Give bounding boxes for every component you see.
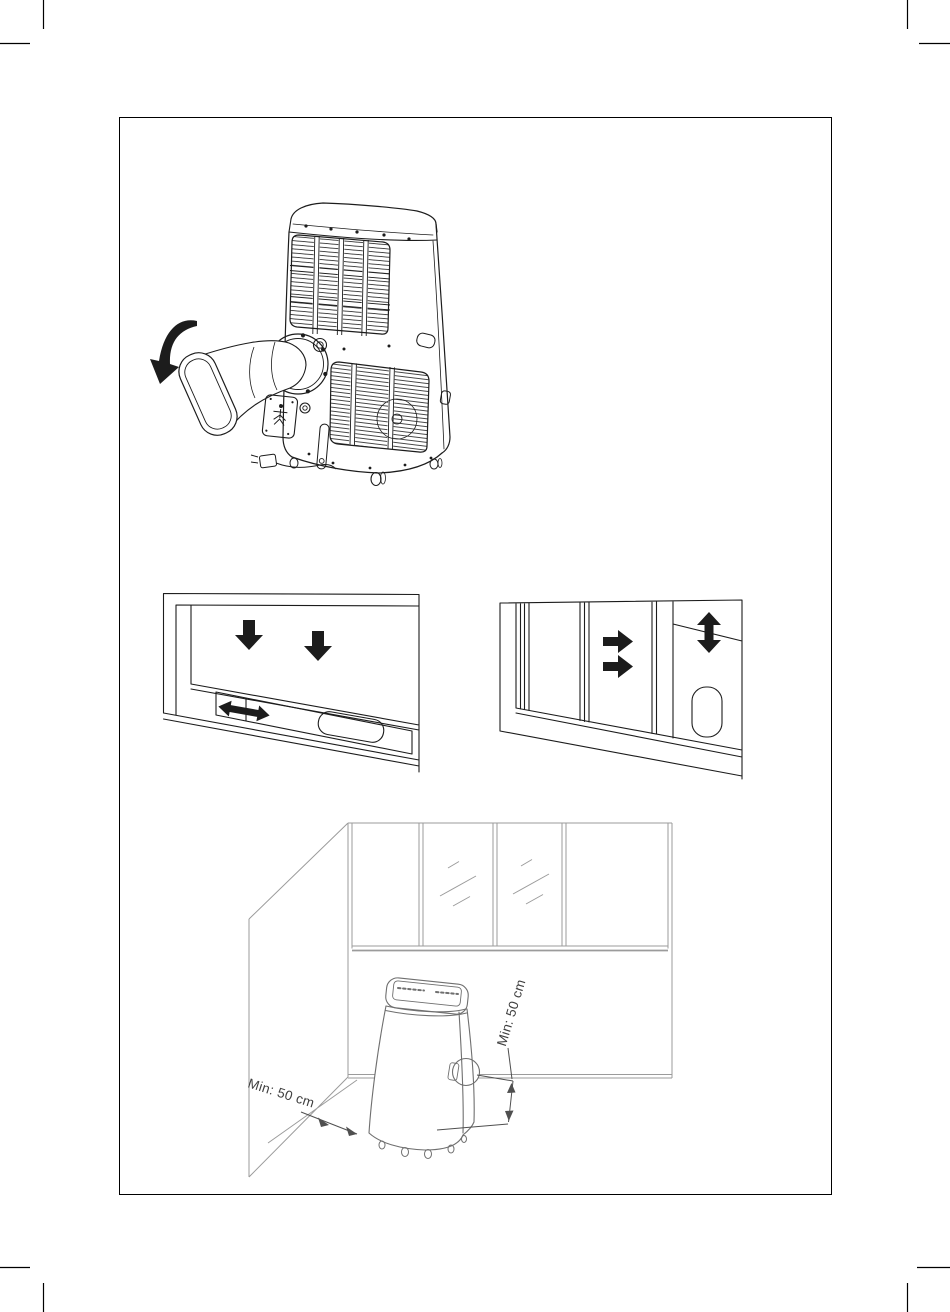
right-arrow-icon <box>603 630 633 653</box>
window-frame <box>164 594 420 773</box>
dimension-arrowhead <box>346 1127 357 1137</box>
hose-outlet-hole <box>692 687 722 737</box>
upper-air-grille <box>290 235 390 336</box>
room-placement-clearance-figure: Min: 50 cm Min: 50 cm <box>225 805 700 1205</box>
lower-air-grille <box>330 362 429 452</box>
power-cord <box>251 454 336 469</box>
min-clearance-label-right: Min: 50 cm <box>494 977 529 1047</box>
right-arrow-icon <box>603 655 633 678</box>
manual-page: Min: 50 cm Min: 50 cm <box>0 0 950 1312</box>
exhaust-hose-attachment-figure <box>140 170 480 500</box>
dimension-arrowhead <box>507 1083 516 1093</box>
portable-ac-unit <box>369 977 480 1159</box>
glass-reflection <box>440 860 549 907</box>
hose-outlet-hole <box>317 710 386 744</box>
slider-kit-horizontal-window-figure <box>155 580 455 795</box>
drain-strap <box>317 424 330 470</box>
drain-cap <box>300 403 310 413</box>
min-clearance-label-left: Min: 50 cm <box>246 1076 316 1111</box>
drain-label-plate <box>262 394 298 438</box>
exhaust-hose <box>173 341 306 441</box>
slider-kit-vertical-window-figure <box>490 590 755 805</box>
down-arrow-icon <box>304 631 332 661</box>
slide-up-down-arrow-icon <box>697 612 721 653</box>
down-arrow-icon <box>235 620 263 650</box>
dimension-arrowhead <box>505 1111 514 1122</box>
carry-handle <box>416 332 437 349</box>
